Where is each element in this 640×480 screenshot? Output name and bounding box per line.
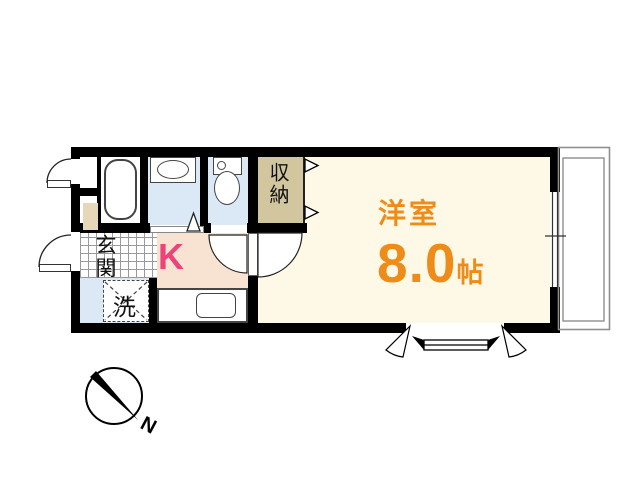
kitchen-label: K	[158, 236, 184, 278]
bathside-door-arc	[47, 159, 71, 183]
balcony-outer-rail	[559, 148, 610, 330]
washroom-folding-door-mark	[187, 213, 200, 231]
entrance-door-arc	[39, 235, 71, 267]
toilet-door-swing	[209, 235, 247, 273]
western-room-label: 洋室	[378, 192, 440, 232]
western-room-size-unit: 帖	[456, 258, 483, 288]
storage-folding-door-mark-bottom	[305, 206, 318, 219]
compass-north-label: N	[137, 413, 160, 439]
compass: N	[86, 368, 160, 439]
floor-plan: N 洋室 8.0帖 K 玄関 収納 洗	[0, 0, 640, 480]
washer-label: 洗	[113, 288, 136, 322]
bottom-window	[386, 326, 526, 357]
westernroom-door-swing	[258, 233, 302, 277]
entrance-label: 玄関	[92, 234, 116, 280]
storage-folding-door-mark-top	[305, 159, 318, 172]
balcony-inner-rail	[563, 158, 604, 321]
western-room-size: 8.0帖	[377, 231, 483, 295]
western-room-size-value: 8.0	[377, 232, 456, 294]
storage-label: 収納	[266, 162, 288, 206]
